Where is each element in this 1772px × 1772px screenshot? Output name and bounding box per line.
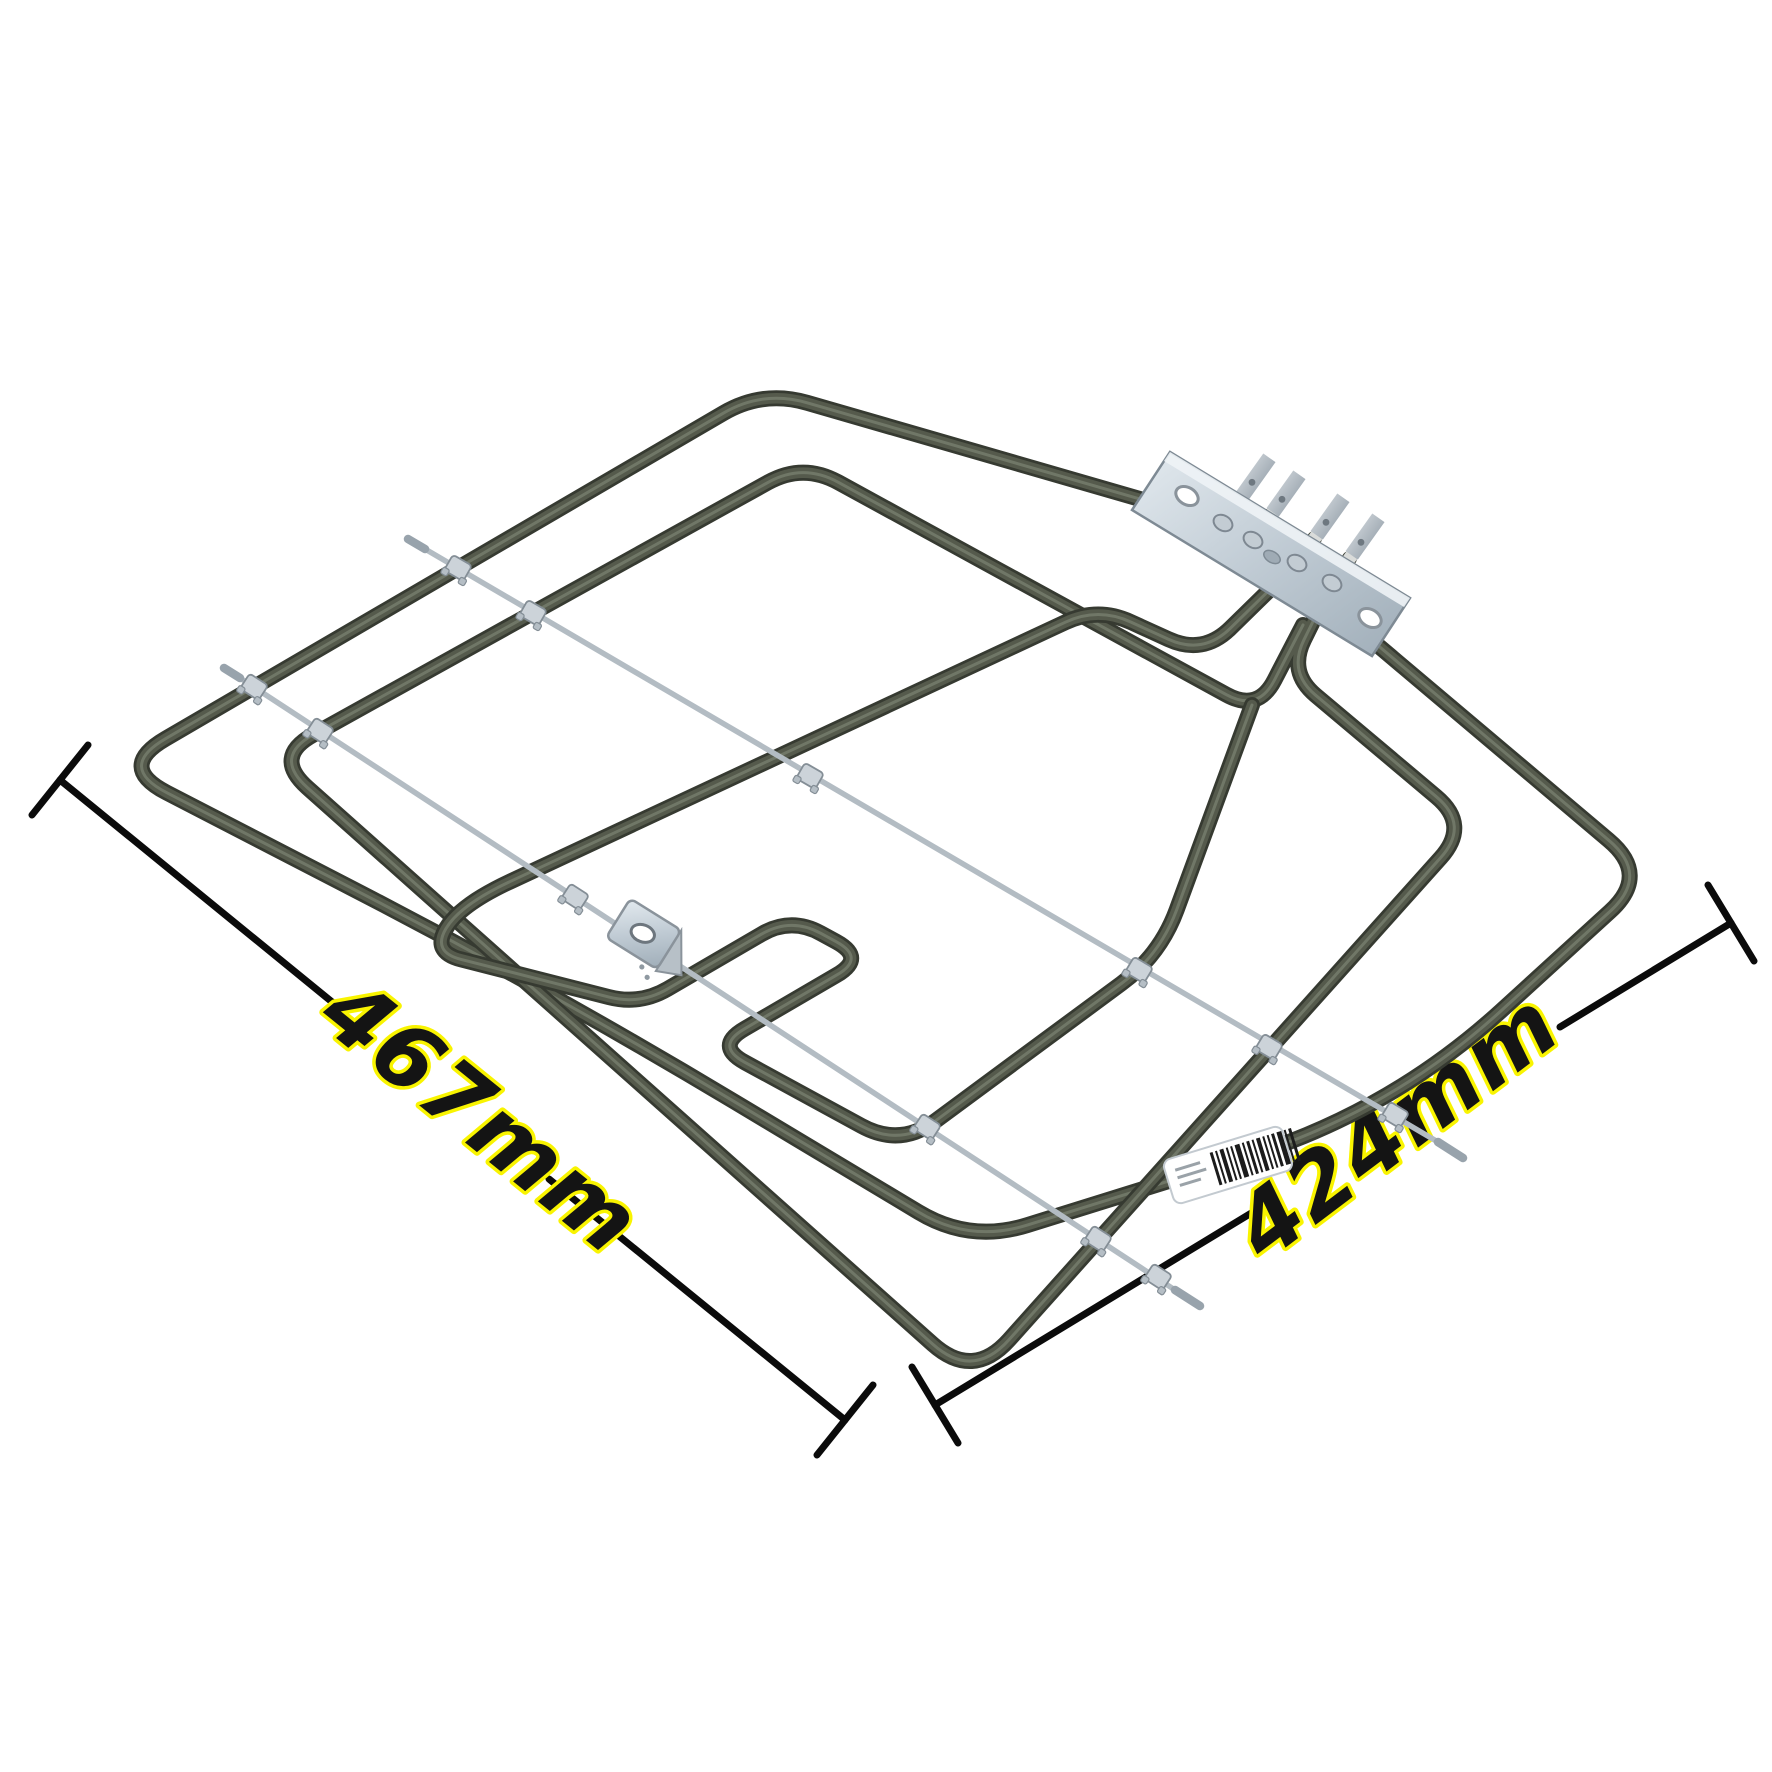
spade-hole	[1323, 519, 1330, 526]
heating-element-image: 467mm 424mm	[0, 0, 1772, 1772]
product-photo: 467mm 424mm	[0, 0, 1772, 1772]
depth-dimension-tick-start	[912, 1367, 958, 1443]
spade-hole	[1358, 539, 1365, 546]
width-dimension-label: 467mm	[301, 957, 660, 1275]
depth-dimension-tick-end	[1708, 885, 1754, 961]
inner-serpentine-tube	[441, 563, 1297, 1135]
rod-2-start-stub	[224, 668, 240, 678]
width-dimension-tick-start	[32, 745, 88, 815]
spade-hole	[1279, 496, 1286, 503]
terminal-block-plate	[1132, 452, 1410, 656]
rod-2-end-foot	[1175, 1290, 1200, 1306]
spade-hole	[1249, 479, 1256, 486]
rod-1-start-stub	[408, 539, 425, 549]
width-dimension-tick-end	[817, 1385, 873, 1455]
element-tubes	[142, 398, 1630, 1361]
